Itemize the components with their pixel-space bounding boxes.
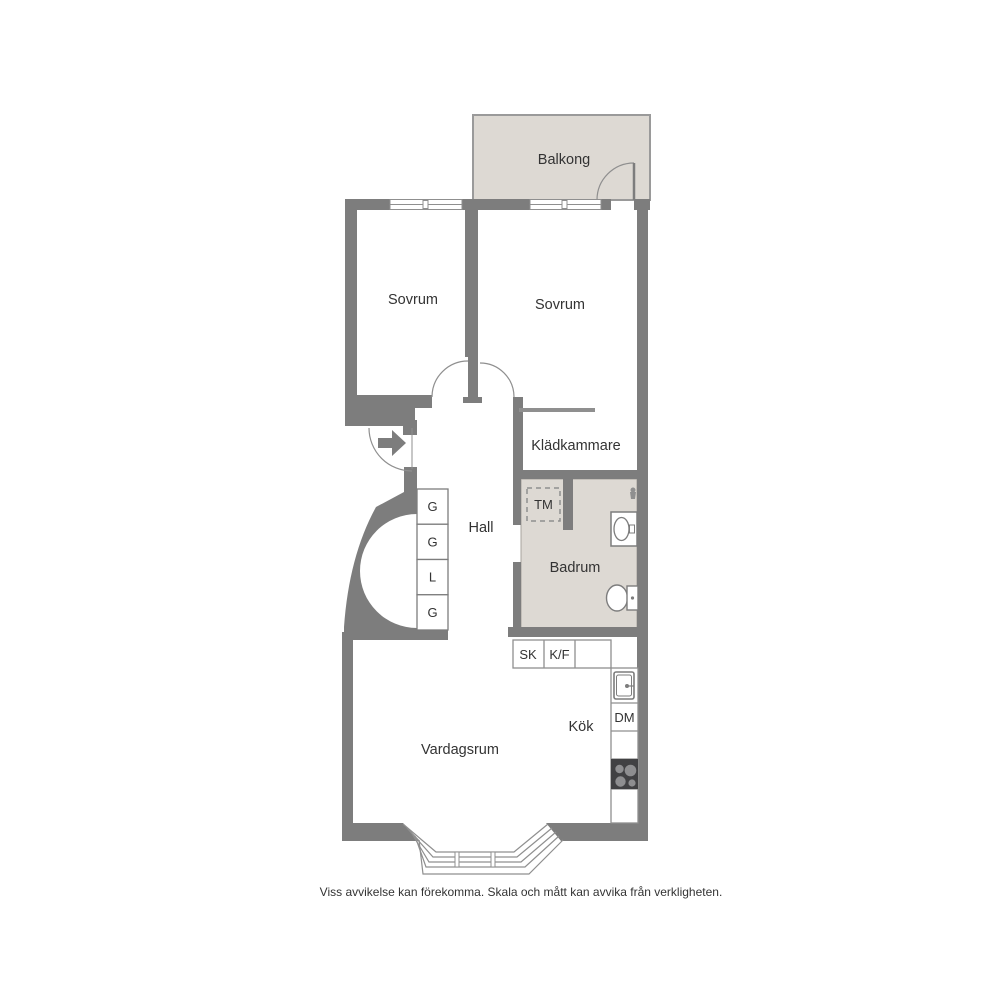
closetroom-rail: [519, 408, 595, 412]
wall-bathroom-left-b: [513, 562, 521, 633]
closet-label-3: L: [429, 570, 436, 585]
kitchen-counter-top: SK K/F: [513, 640, 611, 668]
closet-label-1: G: [427, 499, 437, 514]
wall-bottom-left: [342, 823, 420, 841]
disclaimer-text: Viss avvikelse kan förekomma. Skala och …: [320, 885, 723, 899]
wall-top-2: [462, 199, 530, 210]
wall-left-upper: [345, 199, 357, 426]
shower-mixer-icon: [630, 488, 636, 500]
closet-label-4: G: [427, 605, 437, 620]
wall-bottom-right: [546, 823, 648, 841]
door-arc-left-bedroom: [432, 361, 468, 397]
bay-window: [403, 824, 563, 874]
room-label-vardagsrum: Vardagsrum: [421, 742, 499, 758]
wall-bathroom-bottom: [508, 627, 648, 637]
wall-bathroom-left-a: [513, 479, 521, 525]
room-label-sovrum-left: Sovrum: [388, 292, 438, 308]
washbasin-icon: [611, 512, 637, 546]
door-arc-right-bedroom: [480, 363, 514, 397]
room-label-balkong: Balkong: [538, 152, 590, 168]
wall-door-stub: [468, 357, 478, 403]
hall-closets: G G L G: [417, 489, 448, 630]
room-label-sovrum-right: Sovrum: [535, 297, 585, 313]
window-left-bedroom: [390, 200, 462, 210]
bay-window-mullion-2: [491, 852, 495, 867]
wall-bedroom-divider: [465, 210, 478, 357]
wall-entry-corner: [403, 420, 417, 435]
fridge-freezer-label: K/F: [549, 647, 569, 662]
wall-entry-block: [345, 395, 432, 426]
room-label-kok: Kök: [569, 719, 595, 735]
wall-right-outer: [637, 199, 648, 841]
cabinet-sk-label: SK: [519, 647, 537, 662]
washing-machine-label: TM: [534, 497, 553, 512]
room-label-badrum: Badrum: [550, 560, 601, 576]
stove-icon: [611, 759, 638, 789]
bay-window-mullion-1: [455, 852, 459, 867]
floorplan-page: G G L G TM SK K/F: [0, 0, 992, 992]
wall-livingroom-left: [342, 632, 353, 823]
kitchen-sink-icon: [614, 672, 634, 699]
entry-arrow-icon: [378, 430, 406, 456]
toilet-icon: [607, 585, 639, 611]
floorplan-svg: G G L G TM SK K/F: [0, 0, 992, 992]
window-right-bedroom: [530, 200, 601, 210]
dishwasher-label: DM: [614, 710, 634, 725]
wall-closetroom-bottom: [513, 470, 648, 479]
room-label-kladkammare: Klädkammare: [531, 438, 620, 454]
wall-door-stub-foot: [463, 397, 482, 403]
wall-top-3: [601, 199, 611, 210]
kitchen-counter-right: DM: [611, 668, 638, 823]
room-label-hall: Hall: [469, 520, 494, 536]
wall-tm-stub: [563, 479, 573, 530]
closet-label-2: G: [427, 535, 437, 550]
